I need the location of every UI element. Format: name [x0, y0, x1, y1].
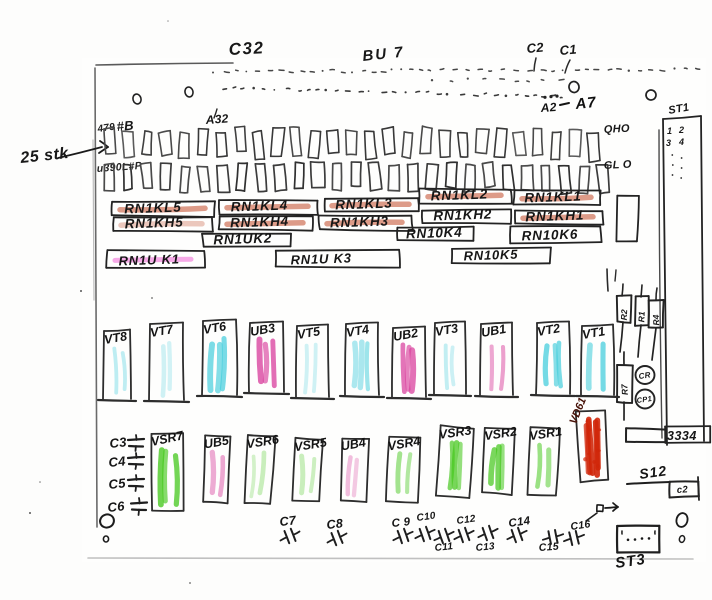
svg-text:RN1KL3: RN1KL3	[335, 196, 393, 213]
svg-text:C8: C8	[326, 516, 344, 532]
svg-text:RN1KL4: RN1KL4	[230, 198, 288, 215]
svg-text:C3: C3	[109, 434, 128, 451]
svg-text:GL O: GL O	[604, 159, 633, 172]
svg-text:C13: C13	[475, 541, 495, 554]
svg-text:RN1UK2: RN1UK2	[213, 230, 272, 247]
svg-text:RN1KH2: RN1KH2	[433, 206, 492, 223]
svg-text:R1: R1	[636, 311, 646, 323]
svg-text:C2: C2	[526, 40, 545, 56]
svg-text:1: 1	[667, 126, 672, 136]
svg-text:RN10K5: RN10K5	[463, 247, 518, 264]
svg-text:RN10K4: RN10K4	[406, 225, 463, 242]
svg-text:C15: C15	[538, 541, 559, 554]
svg-text:C11: C11	[434, 541, 454, 554]
svg-text:RN1KH5: RN1KH5	[124, 214, 183, 231]
svg-text:3334: 3334	[667, 429, 697, 443]
svg-text:C4: C4	[108, 453, 127, 470]
svg-text:A2: A2	[539, 100, 557, 115]
svg-text:A32: A32	[204, 111, 229, 127]
svg-text:R7: R7	[619, 383, 630, 396]
svg-text:RN1KH4: RN1KH4	[230, 213, 289, 230]
svg-text:RN1KL1: RN1KL1	[524, 189, 582, 206]
svg-text:2: 2	[678, 125, 684, 135]
svg-text:CR: CR	[638, 370, 651, 381]
svg-text:R2: R2	[619, 309, 629, 321]
svg-text:C6: C6	[107, 498, 126, 515]
svg-text:4: 4	[678, 137, 684, 147]
svg-text:QHO: QHO	[604, 123, 631, 136]
svg-text:R4: R4	[651, 314, 662, 326]
svg-text:RN10K6: RN10K6	[521, 227, 578, 244]
svg-text:RN1U K3: RN1U K3	[290, 250, 352, 267]
svg-text:C32: C32	[228, 38, 265, 59]
svg-text:RN1U K1: RN1U K1	[118, 251, 180, 268]
svg-text:C1: C1	[559, 42, 577, 58]
svg-text:C 9: C 9	[391, 516, 411, 530]
svg-text:3: 3	[666, 138, 671, 148]
svg-text:RN1KH1: RN1KH1	[525, 207, 584, 224]
svg-text:C5: C5	[108, 475, 127, 492]
svg-text:C7: C7	[279, 513, 298, 529]
svg-text:RN1KL2: RN1KL2	[431, 187, 489, 204]
svg-text:A7: A7	[574, 94, 598, 113]
svg-text:c2: c2	[676, 484, 688, 496]
svg-text:RN1KH3: RN1KH3	[330, 213, 389, 230]
